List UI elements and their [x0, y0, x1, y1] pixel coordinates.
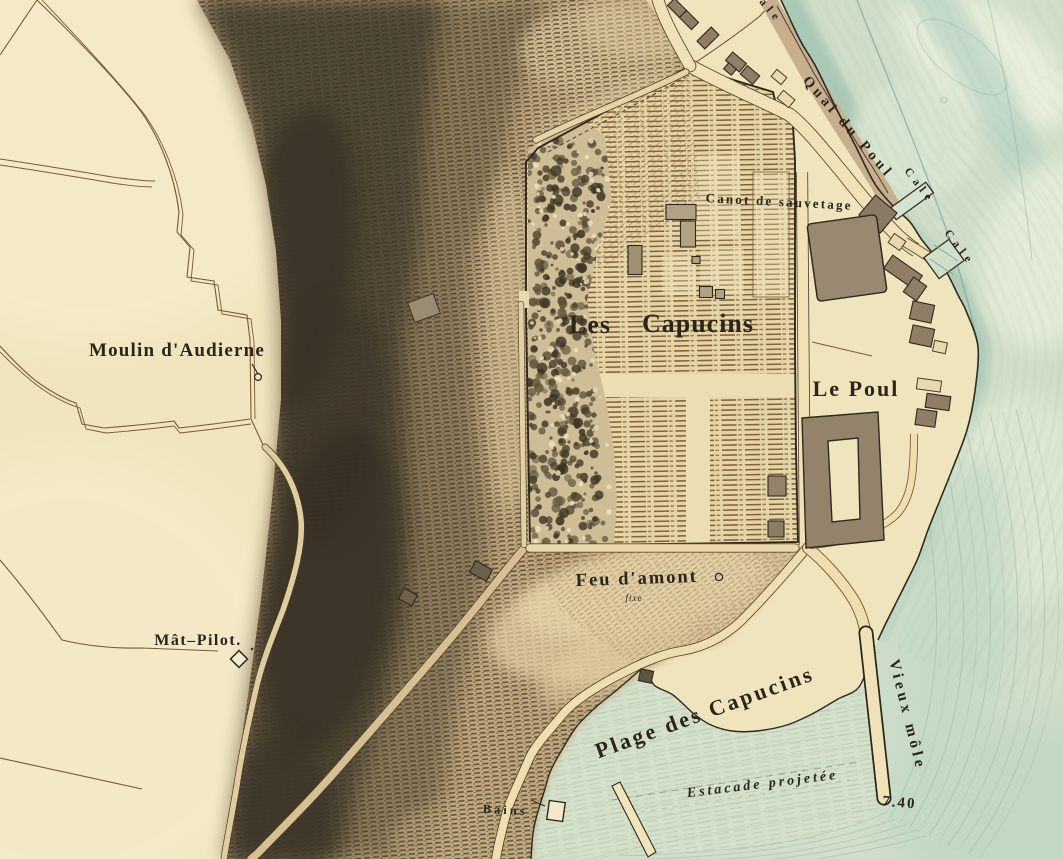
svg-text:Le Poul: Le Poul [813, 376, 900, 401]
svg-text:fixe: fixe [626, 593, 643, 603]
svg-text:7.40: 7.40 [882, 794, 918, 813]
svg-text:Bains: Bains [482, 802, 528, 818]
svg-text:Mât–Pilot.: Mât–Pilot. [154, 632, 241, 649]
svg-text:Moulin d'Audierne: Moulin d'Audierne [89, 340, 265, 361]
svg-text:Capucins: Capucins [642, 309, 754, 338]
svg-text:Les: Les [569, 310, 611, 339]
svg-text:Feu d'amont: Feu d'amont [575, 567, 698, 591]
